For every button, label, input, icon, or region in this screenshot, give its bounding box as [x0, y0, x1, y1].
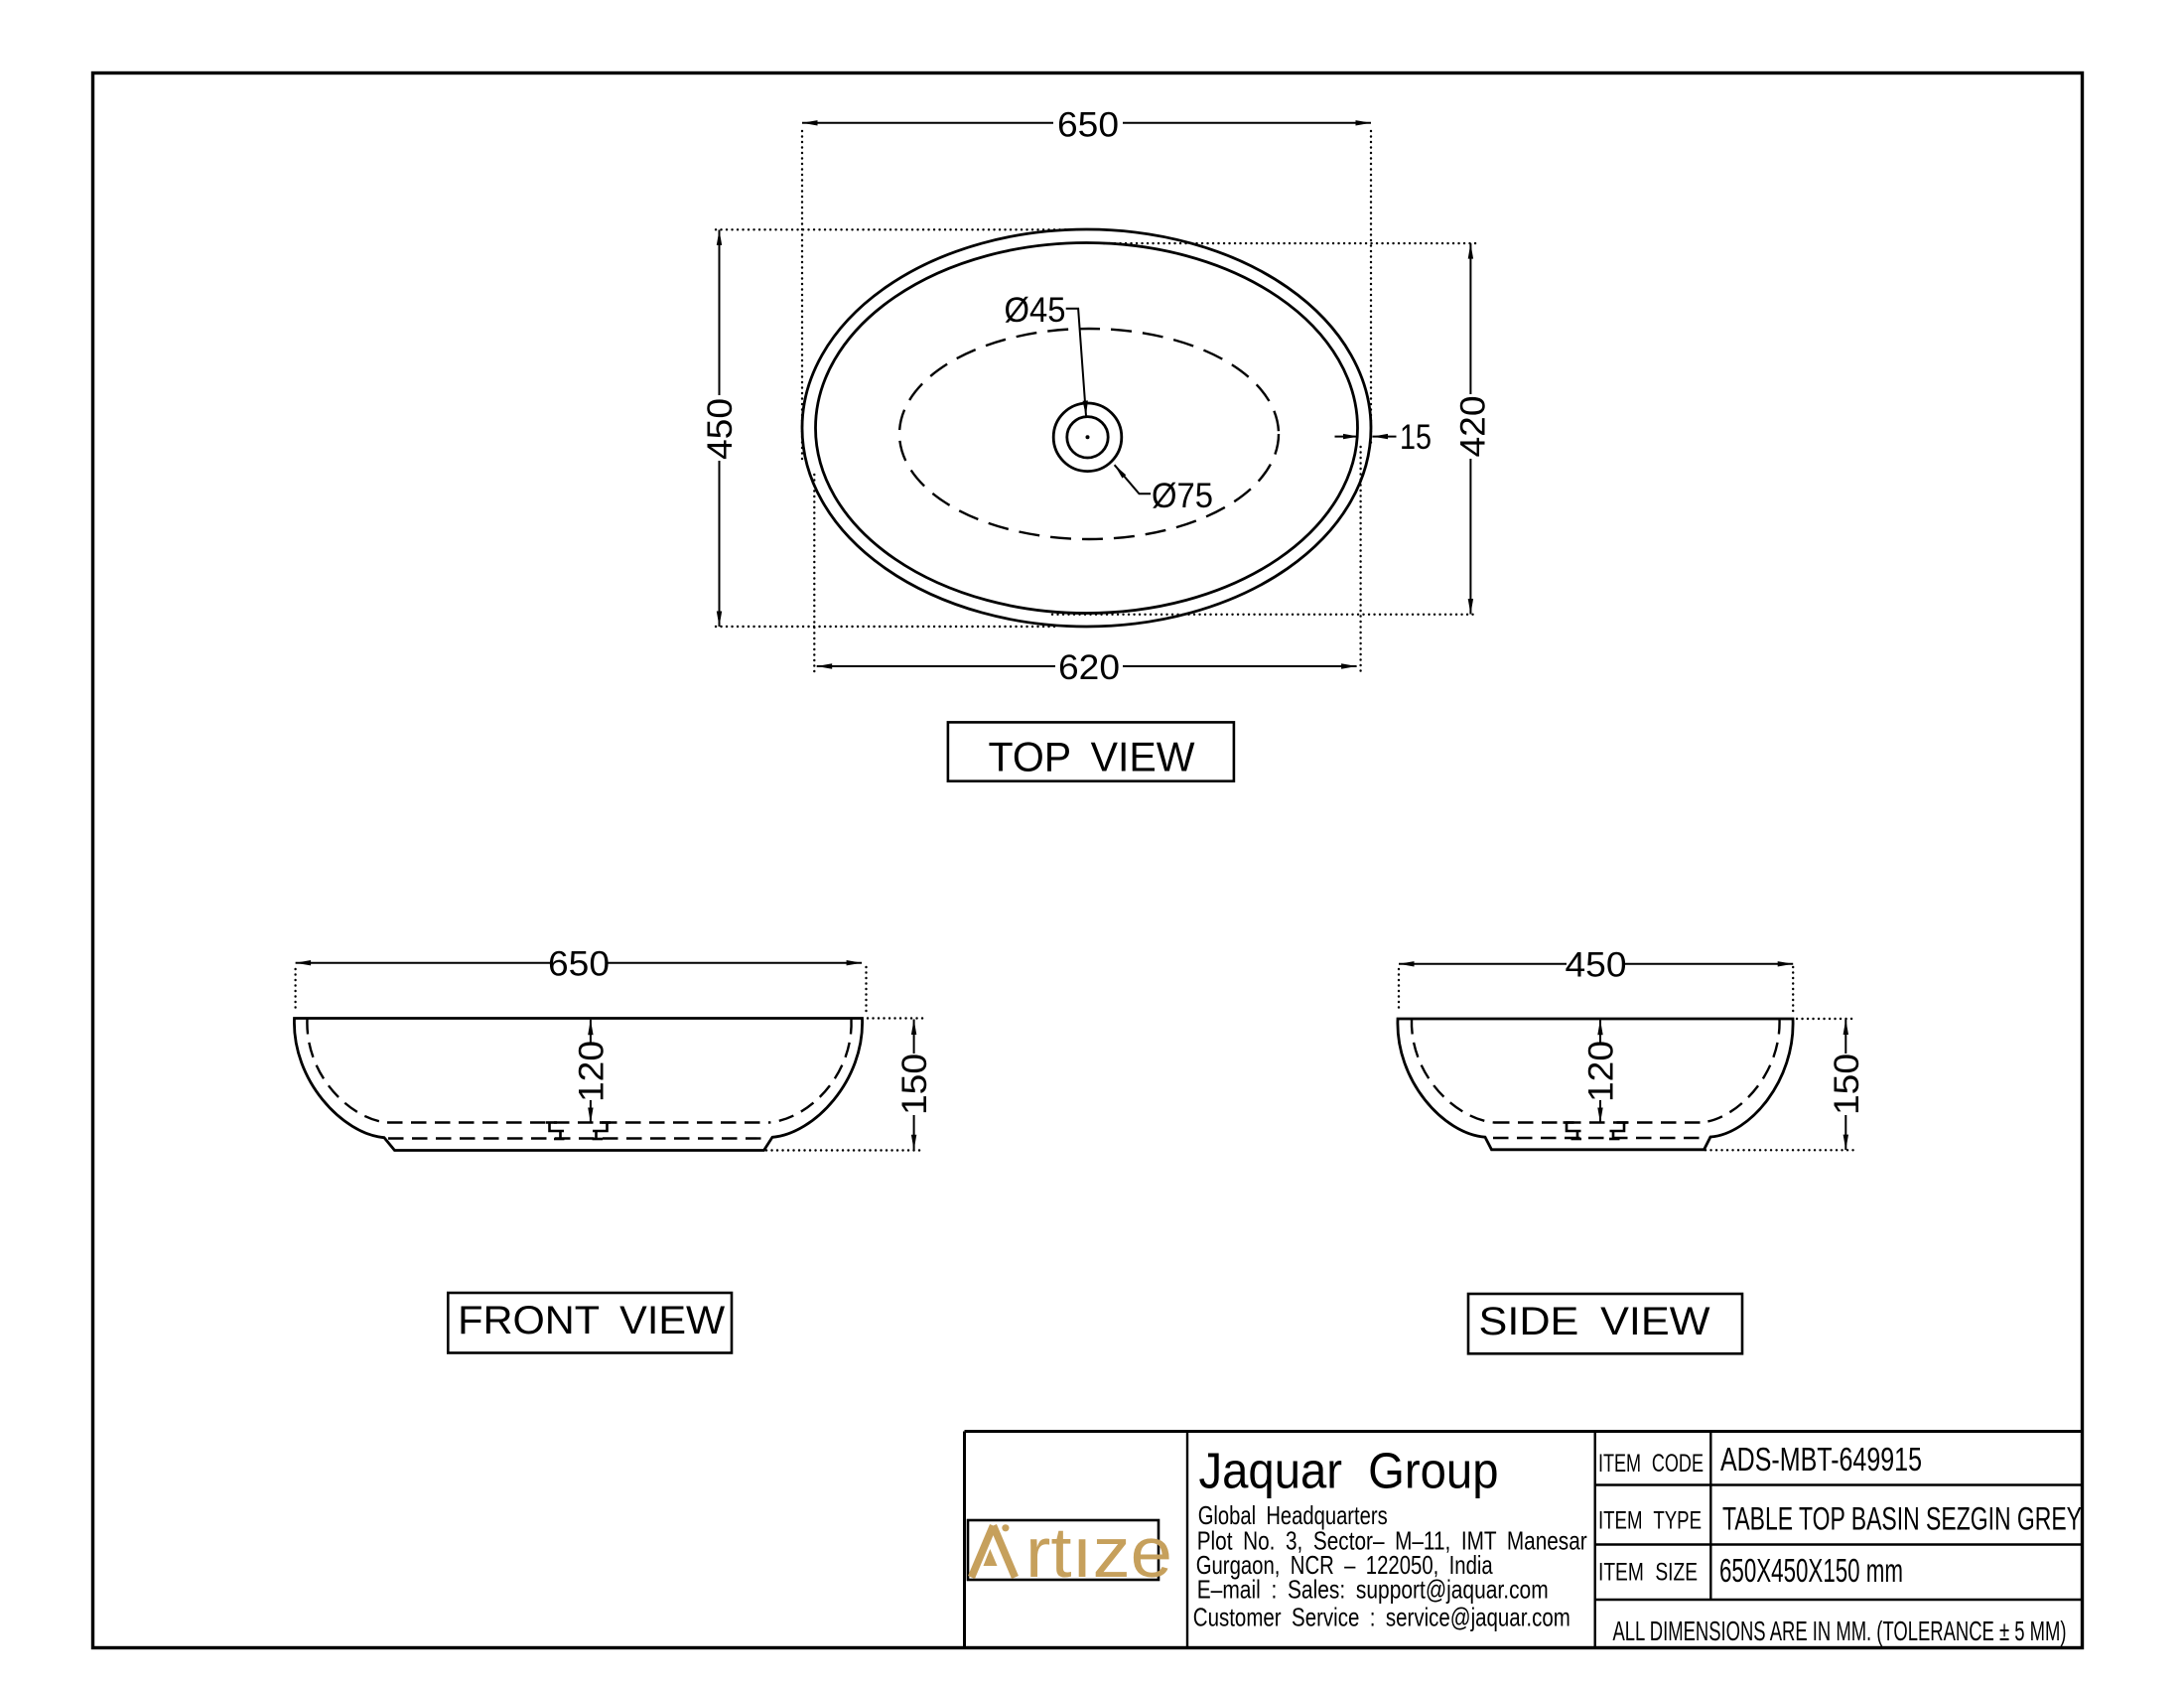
svg-text:Ø45: Ø45 [1005, 291, 1066, 330]
svg-text:TOP VIEW: TOP VIEW [989, 734, 1195, 780]
svg-text:650X450X150 mm: 650X450X150 mm [1719, 1552, 1903, 1589]
svg-text:150: 150 [1828, 1054, 1866, 1115]
svg-text:rtıze: rtıze [1025, 1514, 1172, 1593]
svg-text:650: 650 [1057, 106, 1119, 145]
svg-text:E–mail : Sales: support@jaquar: E–mail : Sales: support@jaquar.com [1197, 1574, 1549, 1604]
svg-text:Jaquar Group: Jaquar Group [1199, 1443, 1499, 1499]
svg-text:Ø75: Ø75 [1152, 477, 1213, 515]
svg-text:450: 450 [701, 398, 740, 460]
svg-text:420: 420 [1454, 396, 1493, 458]
svg-text:620: 620 [1058, 648, 1120, 687]
svg-text:120: 120 [572, 1041, 611, 1102]
svg-text:ALL DIMENSIONS ARE IN MM. (TOL: ALL DIMENSIONS ARE IN MM. (TOLERANCE ± 5… [1613, 1616, 2067, 1646]
svg-text:ITEM TYPE: ITEM TYPE [1598, 1507, 1702, 1535]
svg-text:ITEM SIZE: ITEM SIZE [1598, 1559, 1698, 1587]
svg-text:ITEM CODE: ITEM CODE [1598, 1450, 1704, 1477]
svg-text:TABLE TOP BASIN SEZGIN GREY: TABLE TOP BASIN SEZGIN GREY [1722, 1501, 2082, 1537]
svg-text:120: 120 [1582, 1041, 1621, 1102]
svg-text:FRONT VIEW: FRONT VIEW [458, 1299, 725, 1342]
svg-text:SIDE VIEW: SIDE VIEW [1479, 1300, 1710, 1343]
svg-text:ADS-MBT-649915: ADS-MBT-649915 [1720, 1441, 1922, 1477]
svg-text:650: 650 [548, 945, 610, 984]
svg-text:Customer Service : service@jaq: Customer Service : service@jaquar.com [1193, 1603, 1570, 1632]
svg-text:150: 150 [895, 1054, 934, 1115]
svg-text:450: 450 [1566, 946, 1627, 985]
svg-text:15: 15 [1400, 418, 1432, 457]
